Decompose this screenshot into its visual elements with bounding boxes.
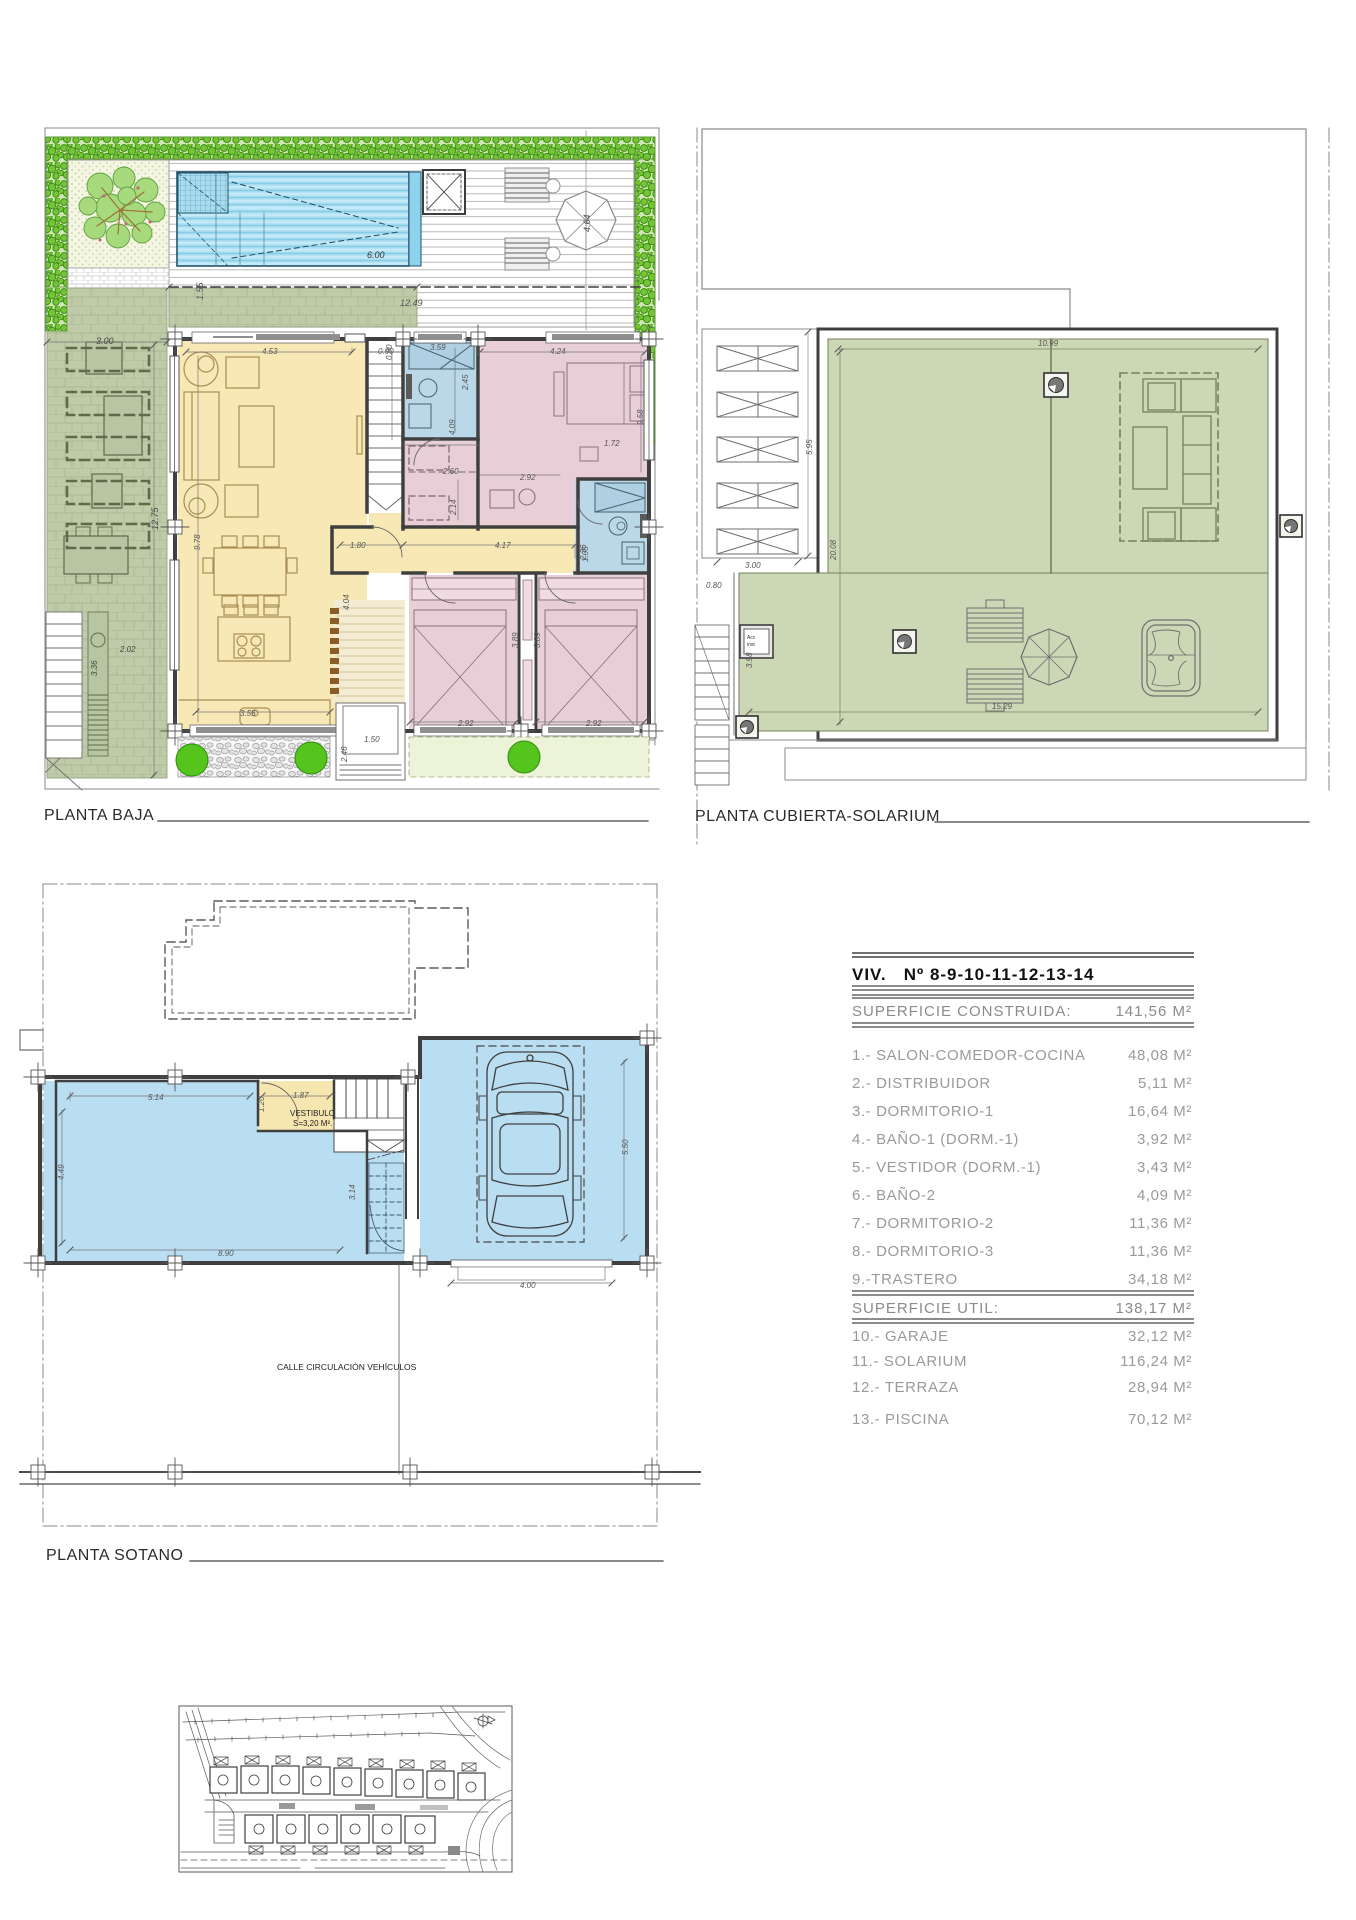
svg-text:12.49: 12.49: [400, 298, 423, 308]
svg-text:6.- BAÑO-2: 6.- BAÑO-2: [852, 1187, 936, 1204]
svg-text:138,17 M²: 138,17 M²: [1115, 1300, 1192, 1317]
svg-text:12.- TERRAZA: 12.- TERRAZA: [852, 1379, 959, 1396]
svg-text:32,12 M²: 32,12 M²: [1128, 1328, 1192, 1345]
svg-text:13.- PISCINA: 13.- PISCINA: [852, 1411, 949, 1428]
svg-text:3.98: 3.98: [745, 652, 754, 668]
svg-text:2.14: 2.14: [449, 499, 458, 516]
svg-text:2.45: 2.45: [461, 374, 470, 391]
svg-text:28,94 M²: 28,94 M²: [1128, 1379, 1192, 1396]
svg-text:1.72: 1.72: [604, 439, 620, 448]
svg-text:2.92: 2.92: [585, 719, 602, 728]
svg-text:0.80: 0.80: [706, 581, 722, 590]
svg-text:34,18 M²: 34,18 M²: [1128, 1271, 1192, 1288]
svg-text:6.00: 6.00: [367, 250, 385, 260]
svg-text:Acc: Acc: [747, 635, 756, 641]
svg-text:10.99: 10.99: [1038, 339, 1059, 348]
svg-text:4,09 M²: 4,09 M²: [1137, 1187, 1192, 1204]
svg-text:20.08: 20.08: [829, 539, 838, 561]
svg-text:70,12 M²: 70,12 M²: [1128, 1411, 1192, 1428]
svg-text:2.92: 2.92: [519, 473, 536, 482]
svg-text:3.89: 3.89: [511, 632, 520, 648]
svg-text:11,36 M²: 11,36 M²: [1129, 1215, 1192, 1232]
svg-text:SUPERFICIE CONSTRUIDA:: SUPERFICIE CONSTRUIDA:: [852, 1003, 1072, 1020]
svg-text:7.- DORMITORIO-2: 7.- DORMITORIO-2: [852, 1215, 994, 1232]
svg-text:4.04: 4.04: [342, 594, 351, 610]
svg-text:8.- DORMITORIO-3: 8.- DORMITORIO-3: [852, 1243, 994, 1260]
svg-text:3.36: 3.36: [90, 660, 99, 676]
svg-text:2.60: 2.60: [442, 467, 459, 476]
svg-text:11.- SOLARIUM: 11.- SOLARIUM: [852, 1353, 967, 1370]
svg-text:5.95: 5.95: [805, 439, 814, 455]
svg-text:1.55: 1.55: [195, 281, 205, 300]
svg-text:3.00: 3.00: [96, 336, 114, 346]
svg-text:PLANTA CUBIERTA-SOLARIUM: PLANTA CUBIERTA-SOLARIUM: [695, 808, 940, 825]
svg-text:0.90: 0.90: [385, 344, 394, 360]
svg-text:5.- VESTIDOR (DORM.-1): 5.- VESTIDOR (DORM.-1): [852, 1159, 1041, 1176]
svg-text:3.59: 3.59: [430, 343, 446, 352]
svg-text:4.- BAÑO-1 (DORM.-1): 4.- BAÑO-1 (DORM.-1): [852, 1131, 1019, 1148]
svg-text:S=3,20 M².: S=3,20 M².: [293, 1119, 332, 1128]
svg-text:PLANTA BAJA: PLANTA BAJA: [44, 807, 154, 824]
svg-text:CALLE CIRCULACIÓN VEHÍCULOS: CALLE CIRCULACIÓN VEHÍCULOS: [277, 1362, 417, 1372]
svg-text:4.24: 4.24: [550, 347, 566, 356]
svg-text:PLANTA SOTANO: PLANTA SOTANO: [46, 1547, 184, 1564]
svg-text:inst: inst: [747, 642, 755, 648]
svg-text:4.53: 4.53: [262, 347, 278, 356]
svg-text:2.02: 2.02: [119, 645, 136, 654]
svg-text:141,56 M²: 141,56 M²: [1115, 1003, 1192, 1020]
svg-text:3.89: 3.89: [533, 632, 542, 648]
svg-text:15.29: 15.29: [992, 702, 1013, 711]
svg-text:4.49: 4.49: [57, 1164, 66, 1180]
svg-text:3.14: 3.14: [348, 1184, 357, 1200]
svg-text:3.55: 3.55: [240, 709, 256, 718]
svg-text:9.58: 9.58: [636, 409, 645, 425]
svg-text:1.80: 1.80: [350, 541, 366, 550]
svg-text:10.- GARAJE: 10.- GARAJE: [852, 1328, 949, 1345]
svg-text:4.17: 4.17: [495, 541, 511, 550]
svg-text:3,92 M²: 3,92 M²: [1137, 1131, 1192, 1148]
svg-text:3.- DORMITORIO-1: 3.- DORMITORIO-1: [852, 1103, 994, 1120]
svg-text:16,64 M²: 16,64 M²: [1128, 1103, 1192, 1120]
svg-text:1.50: 1.50: [364, 735, 380, 744]
svg-text:4.64: 4.64: [582, 214, 592, 232]
svg-text:5,11 M²: 5,11 M²: [1138, 1075, 1192, 1092]
svg-text:4.00: 4.00: [520, 1281, 536, 1290]
svg-text:9.78: 9.78: [193, 534, 202, 550]
svg-text:9.-TRASTERO: 9.-TRASTERO: [852, 1271, 958, 1288]
svg-text:VIV. Nº 8-9-10-11-12-13-14: VIV. Nº 8-9-10-11-12-13-14: [852, 965, 1094, 984]
svg-text:3,43 M²: 3,43 M²: [1137, 1159, 1192, 1176]
svg-text:12.75: 12.75: [150, 506, 160, 530]
svg-text:1.20: 1.20: [257, 1096, 266, 1112]
svg-text:3.00: 3.00: [745, 561, 761, 570]
svg-text:2.46: 2.46: [340, 746, 349, 763]
svg-text:1.- SALON-COMEDOR-COCINA: 1.- SALON-COMEDOR-COCINA: [852, 1047, 1086, 1064]
svg-text:48,08 M²: 48,08 M²: [1128, 1047, 1192, 1064]
svg-text:4.09: 4.09: [448, 419, 457, 435]
svg-text:116,24 M²: 116,24 M²: [1120, 1353, 1192, 1370]
svg-text:2.92: 2.92: [457, 719, 474, 728]
svg-text:2.- DISTRIBUIDOR: 2.- DISTRIBUIDOR: [852, 1075, 991, 1092]
svg-text:5.14: 5.14: [148, 1093, 164, 1102]
svg-text:1.05: 1.05: [581, 546, 590, 562]
svg-text:5.50: 5.50: [621, 1139, 630, 1155]
svg-text:11,36 M²: 11,36 M²: [1129, 1243, 1192, 1260]
svg-text:SUPERFICIE UTIL:: SUPERFICIE UTIL:: [852, 1300, 999, 1317]
svg-text:1.87: 1.87: [293, 1091, 309, 1100]
